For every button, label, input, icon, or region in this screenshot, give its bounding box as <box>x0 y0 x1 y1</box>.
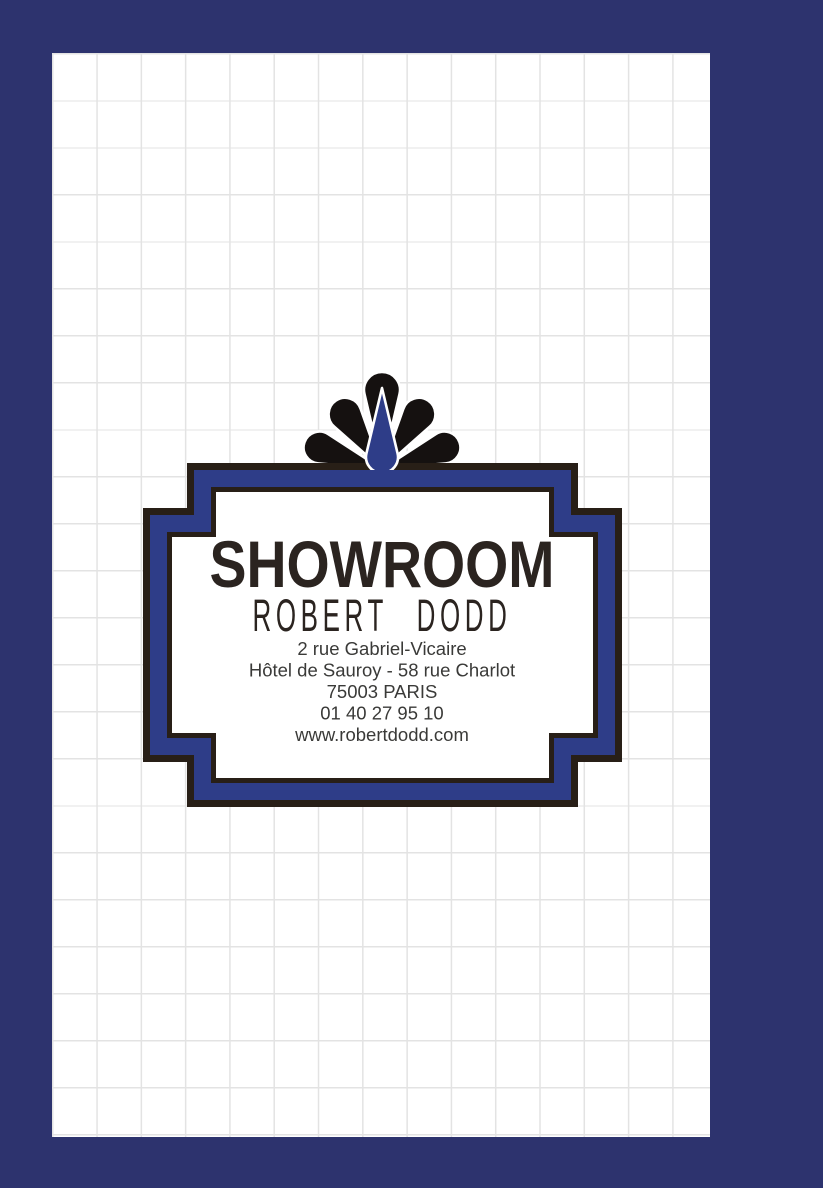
address-line-street: 2 rue Gabriel-Vicaire <box>297 638 466 659</box>
address-line-building: Hôtel de Sauroy - 58 rue Charlot <box>249 660 515 681</box>
address-line-city: 75003 PARIS <box>327 681 438 702</box>
grid-paper: SHOWROOM ROBERT DODD 2 rue Gabriel-Vicai… <box>52 53 710 1137</box>
owner-name: ROBERT DODD <box>253 590 512 641</box>
page-border: SHOWROOM ROBERT DODD 2 rue Gabriel-Vicai… <box>0 0 823 1188</box>
website-url: www.robertdodd.com <box>294 724 469 745</box>
showroom-plaque: SHOWROOM ROBERT DODD 2 rue Gabriel-Vicai… <box>52 53 710 1137</box>
phone-number: 01 40 27 95 10 <box>320 703 443 724</box>
